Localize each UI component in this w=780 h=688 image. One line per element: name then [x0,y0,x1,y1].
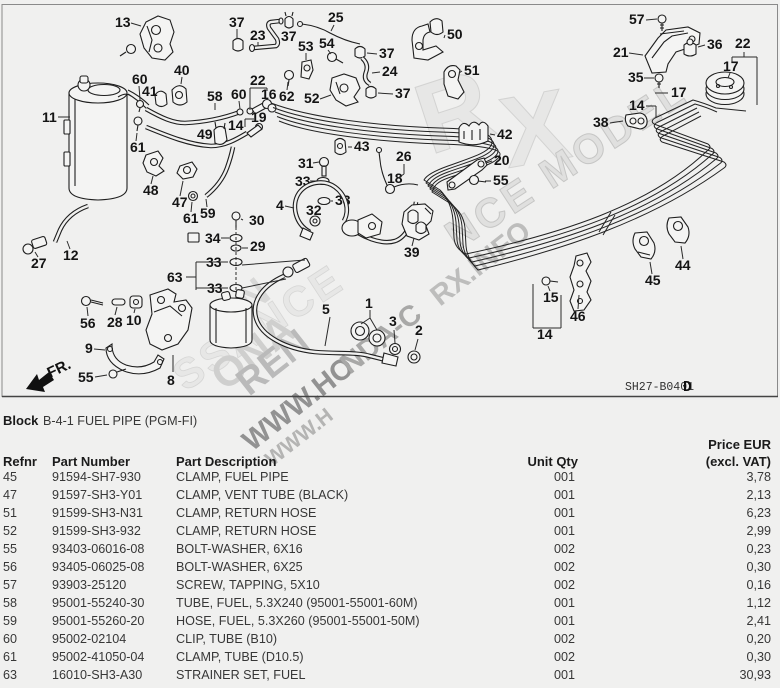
svg-text:57: 57 [3,578,17,592]
svg-text:002: 002 [554,542,575,556]
svg-text:91594-SH7-930: 91594-SH7-930 [52,470,141,484]
svg-text:61: 61 [183,210,199,226]
svg-text:31: 31 [298,155,314,171]
svg-text:5: 5 [322,301,330,317]
svg-text:16010-SH3-A30: 16010-SH3-A30 [52,668,142,682]
svg-text:001: 001 [554,506,575,520]
svg-text:0,20: 0,20 [746,632,771,646]
svg-text:58: 58 [207,88,223,104]
svg-text:45: 45 [645,272,661,288]
svg-text:6,23: 6,23 [746,506,771,520]
svg-text:D: D [683,380,692,396]
svg-text:25: 25 [328,9,344,25]
svg-text:51: 51 [3,506,17,520]
svg-text:2,41: 2,41 [746,614,771,628]
svg-text:12: 12 [63,247,79,263]
svg-text:22: 22 [735,35,751,51]
svg-text:51: 51 [464,62,480,78]
svg-text:14: 14 [629,97,645,113]
svg-text:2: 2 [415,322,423,338]
svg-text:3,78: 3,78 [746,470,771,484]
svg-text:59: 59 [200,205,216,221]
svg-text:62: 62 [279,88,295,104]
svg-text:TUBE, FUEL, 5.3X240 (95001-550: TUBE, FUEL, 5.3X240 (95001-55001-60M) [176,596,418,610]
svg-text:43: 43 [354,138,370,154]
svg-text:20: 20 [494,152,510,168]
svg-text:61: 61 [3,650,17,664]
svg-text:15: 15 [543,289,559,305]
svg-text:CLAMP, RETURN HOSE: CLAMP, RETURN HOSE [176,524,316,538]
svg-text:14: 14 [228,117,244,133]
svg-text:47: 47 [172,194,188,210]
svg-text:002: 002 [554,560,575,574]
svg-text:BOLT-WASHER, 6X25: BOLT-WASHER, 6X25 [176,560,303,574]
svg-text:55: 55 [3,542,17,556]
svg-text:54: 54 [319,35,335,51]
svg-text:32: 32 [306,202,322,218]
svg-text:002: 002 [554,578,575,592]
svg-text:56: 56 [80,315,96,331]
svg-text:60: 60 [3,632,17,646]
svg-text:001: 001 [554,614,575,628]
svg-text:63: 63 [3,668,17,682]
svg-text:93403-06016-08: 93403-06016-08 [52,542,144,556]
svg-text:Unit Qty: Unit Qty [527,454,578,469]
svg-text:37: 37 [281,28,297,44]
svg-text:93903-25120: 93903-25120 [52,578,126,592]
svg-text:59: 59 [3,614,17,628]
svg-text:48: 48 [143,182,159,198]
svg-text:52: 52 [304,90,320,106]
svg-text:56: 56 [3,560,17,574]
svg-text:50: 50 [447,26,463,42]
svg-text:23: 23 [250,27,266,43]
svg-text:30,93: 30,93 [739,668,771,682]
svg-text:93405-06025-08: 93405-06025-08 [52,560,144,574]
svg-text:CLAMP, FUEL PIPE: CLAMP, FUEL PIPE [176,470,289,484]
svg-text:(excl. VAT): (excl. VAT) [706,454,771,469]
svg-text:17: 17 [671,84,687,100]
svg-text:95001-55240-30: 95001-55240-30 [52,596,144,610]
svg-text:Price EUR: Price EUR [708,437,771,452]
svg-text:47: 47 [3,488,17,502]
svg-text:42: 42 [497,126,513,142]
svg-text:Part Description: Part Description [176,454,276,469]
svg-text:39: 39 [404,244,420,260]
svg-text:21: 21 [613,44,629,60]
svg-text:91597-SH3-Y01: 91597-SH3-Y01 [52,488,142,502]
svg-text:CLIP, TUBE (B10): CLIP, TUBE (B10) [176,632,277,646]
svg-text:91599-SH3-N31: 91599-SH3-N31 [52,506,143,520]
svg-text:CLAMP, VENT TUBE (BLACK): CLAMP, VENT TUBE (BLACK) [176,488,348,502]
svg-text:95001-55260-20: 95001-55260-20 [52,614,144,628]
svg-text:0,16: 0,16 [746,578,771,592]
svg-text:2,13: 2,13 [746,488,771,502]
svg-text:38: 38 [593,114,609,130]
svg-text:001: 001 [554,470,575,484]
svg-text:55: 55 [493,172,509,188]
svg-text:26: 26 [396,148,412,164]
svg-text:Part Number: Part Number [52,454,130,469]
svg-text:22: 22 [250,72,266,88]
svg-text:91599-SH3-932: 91599-SH3-932 [52,524,141,538]
svg-text:Refnr: Refnr [3,454,37,469]
svg-text:30: 30 [249,212,265,228]
svg-text:41: 41 [142,83,158,99]
svg-text:002: 002 [554,650,575,664]
svg-text:46: 46 [570,308,586,324]
svg-text:40: 40 [174,62,190,78]
svg-text:001: 001 [554,596,575,610]
svg-text:60: 60 [231,86,247,102]
svg-text:37: 37 [229,14,245,30]
svg-text:001: 001 [554,488,575,502]
svg-text:44: 44 [675,257,691,273]
svg-text:24: 24 [382,63,398,79]
svg-text:95002-02104: 95002-02104 [52,632,126,646]
svg-text:3: 3 [389,313,397,329]
svg-text:B-4-1 FUEL PIPE (PGM-FI): B-4-1 FUEL PIPE (PGM-FI) [43,414,197,428]
svg-text:0,23: 0,23 [746,542,771,556]
svg-text:34: 34 [205,230,221,246]
svg-text:2,99: 2,99 [746,524,771,538]
svg-text:57: 57 [629,11,645,27]
svg-text:28: 28 [107,314,123,330]
svg-text:17: 17 [723,58,739,74]
svg-text:4: 4 [276,197,284,213]
svg-text:61: 61 [130,139,146,155]
svg-text:8: 8 [167,372,175,388]
svg-text:SCREW, TAPPING, 5X10: SCREW, TAPPING, 5X10 [176,578,320,592]
svg-text:Block: Block [3,413,39,428]
svg-text:63: 63 [167,269,183,285]
svg-text:29: 29 [250,238,266,254]
svg-text:13: 13 [115,14,131,30]
svg-text:58: 58 [3,596,17,610]
svg-text:19: 19 [251,109,267,125]
svg-text:52: 52 [3,524,17,538]
svg-text:10: 10 [126,312,142,328]
svg-text:9: 9 [85,340,93,356]
svg-text:45: 45 [3,470,17,484]
svg-text:1: 1 [365,295,373,311]
svg-text:STRAINER SET, FUEL: STRAINER SET, FUEL [176,668,305,682]
svg-text:BOLT-WASHER, 6X16: BOLT-WASHER, 6X16 [176,542,303,556]
svg-text:0,30: 0,30 [746,560,771,574]
svg-text:001: 001 [554,524,575,538]
svg-text:37: 37 [395,85,411,101]
svg-text:001: 001 [554,668,575,682]
svg-text:0,30: 0,30 [746,650,771,664]
svg-text:1,12: 1,12 [746,596,771,610]
svg-text:CLAMP, RETURN HOSE: CLAMP, RETURN HOSE [176,506,316,520]
svg-text:36: 36 [707,36,723,52]
svg-text:27: 27 [31,255,47,271]
svg-text:55: 55 [78,369,94,385]
svg-text:11: 11 [42,109,57,125]
svg-text:53: 53 [298,38,314,54]
svg-text:002: 002 [554,632,575,646]
svg-text:35: 35 [628,69,644,85]
svg-text:37: 37 [379,45,395,61]
svg-text:95002-41050-04: 95002-41050-04 [52,650,144,664]
svg-text:18: 18 [387,170,403,186]
svg-text:CLAMP, TUBE (D10.5): CLAMP, TUBE (D10.5) [176,650,304,664]
svg-text:HOSE, FUEL, 5.3X260 (95001-550: HOSE, FUEL, 5.3X260 (95001-55001-50M) [176,614,420,628]
svg-text:49: 49 [197,126,213,142]
